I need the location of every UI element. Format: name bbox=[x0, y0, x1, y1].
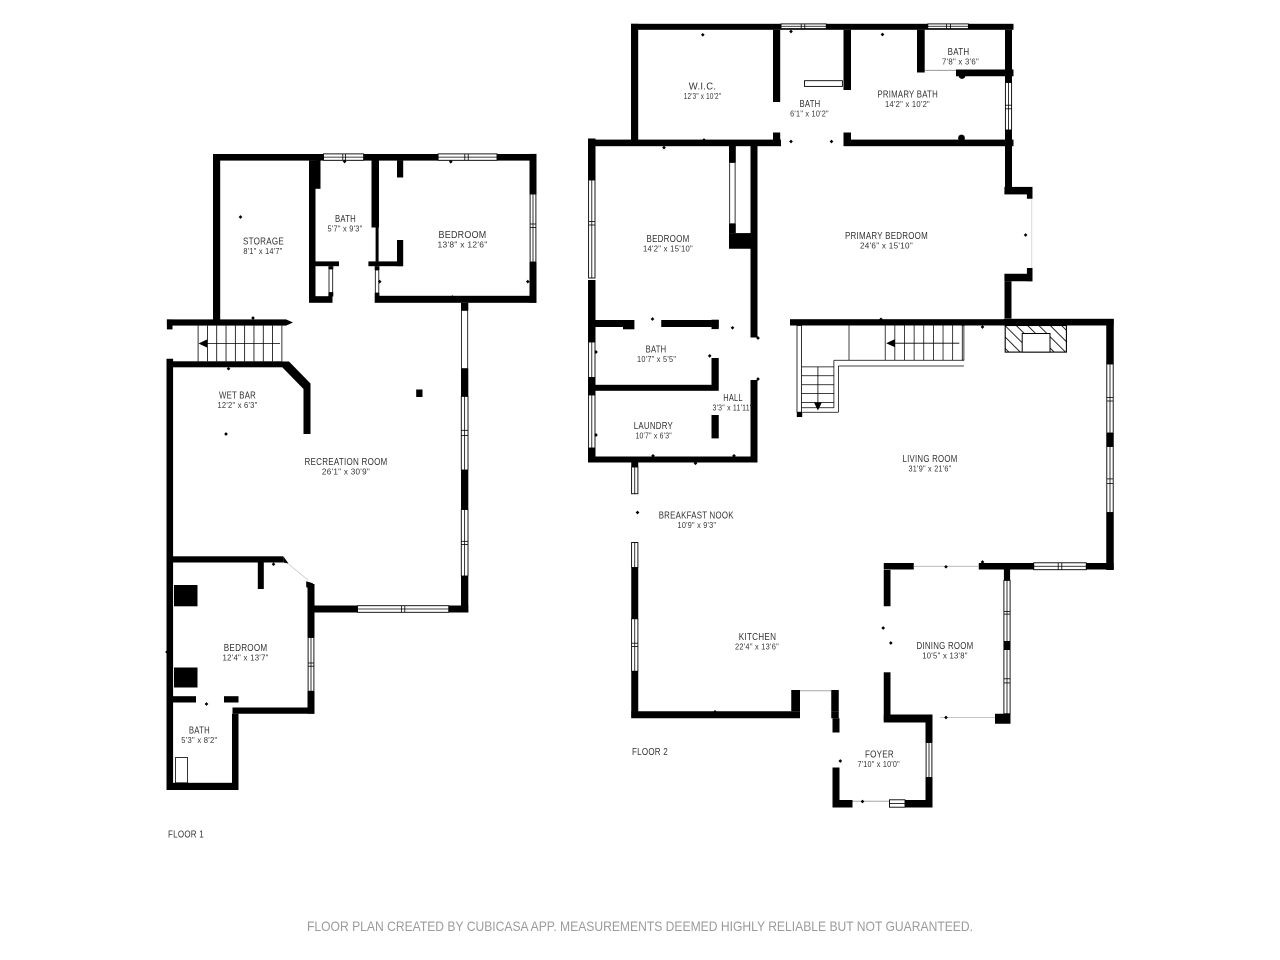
svg-text:26'1" x 30'9": 26'1" x 30'9" bbox=[322, 467, 370, 477]
svg-text:12'3" x 10'2": 12'3" x 10'2" bbox=[684, 91, 722, 101]
svg-text:31'9" x 21'6": 31'9" x 21'6" bbox=[909, 464, 952, 474]
svg-text:14'2" x 15'10": 14'2" x 15'10" bbox=[643, 244, 693, 254]
svg-text:14'2" x 10'2": 14'2" x 10'2" bbox=[885, 99, 930, 109]
svg-text:22'4" x 13'6": 22'4" x 13'6" bbox=[735, 642, 779, 652]
svg-text:8'1" x 14'7": 8'1" x 14'7" bbox=[243, 246, 282, 256]
svg-text:24'6" x 15'10": 24'6" x 15'10" bbox=[860, 241, 913, 251]
svg-text:10'9" x 9'3": 10'9" x 9'3" bbox=[678, 520, 717, 530]
svg-text:3'3" x 11'11": 3'3" x 11'11" bbox=[713, 403, 753, 413]
svg-text:5'3" x 8'2": 5'3" x 8'2" bbox=[181, 735, 217, 745]
svg-text:7'8" x 3'6": 7'8" x 3'6" bbox=[942, 57, 979, 67]
svg-text:6'1" x 10'2": 6'1" x 10'2" bbox=[790, 109, 829, 119]
svg-text:12'4" x 13'7": 12'4" x 13'7" bbox=[223, 653, 269, 663]
svg-text:5'7" x 9'3": 5'7" x 9'3" bbox=[328, 223, 363, 233]
svg-text:7'10" x 10'0": 7'10" x 10'0" bbox=[857, 759, 900, 769]
svg-text:10'5" x 13'8": 10'5" x 13'8" bbox=[922, 650, 968, 660]
svg-text:12'2" x 6'3": 12'2" x 6'3" bbox=[218, 400, 258, 410]
svg-text:FLOOR 1: FLOOR 1 bbox=[168, 830, 204, 841]
svg-text:13'8" x 12'6": 13'8" x 12'6" bbox=[438, 239, 488, 249]
svg-text:10'7" x 5'5": 10'7" x 5'5" bbox=[637, 354, 676, 364]
svg-text:10'7" x 6'3": 10'7" x 6'3" bbox=[635, 430, 672, 440]
svg-text:FLOOR PLAN CREATED BY CUBICASA: FLOOR PLAN CREATED BY CUBICASA APP. MEAS… bbox=[307, 919, 973, 934]
svg-text:FLOOR 2: FLOOR 2 bbox=[632, 747, 668, 758]
